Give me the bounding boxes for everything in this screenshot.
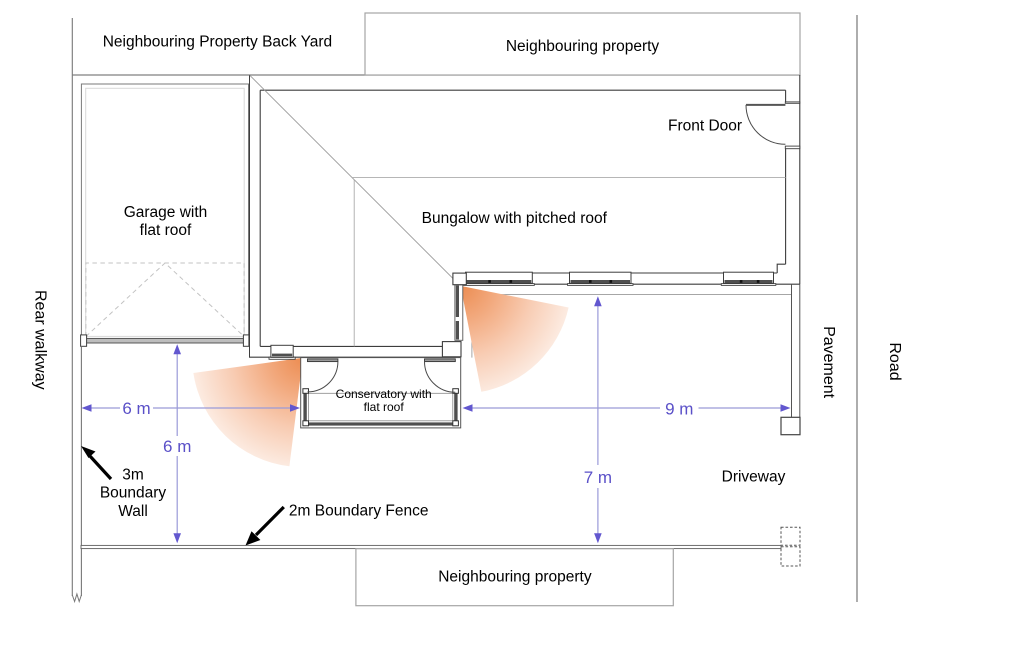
svg-text:Driveway: Driveway bbox=[722, 469, 786, 486]
svg-text:Neighbouring property: Neighbouring property bbox=[506, 38, 660, 55]
svg-text:Conservatory with: Conservatory with bbox=[336, 387, 432, 401]
svg-text:Wall: Wall bbox=[118, 503, 148, 520]
svg-text:2m Boundary Fence: 2m Boundary Fence bbox=[289, 502, 429, 519]
svg-text:Rear walkway: Rear walkway bbox=[32, 290, 49, 390]
svg-text:Neighbouring Property Back Yar: Neighbouring Property Back Yard bbox=[103, 33, 332, 50]
svg-text:Garage with: Garage with bbox=[124, 204, 208, 221]
svg-text:Bungalow with pitched roof: Bungalow with pitched roof bbox=[422, 210, 608, 227]
svg-text:7 m: 7 m bbox=[584, 468, 612, 487]
svg-text:6 m: 6 m bbox=[122, 399, 150, 418]
svg-text:Pavement: Pavement bbox=[820, 326, 837, 399]
svg-text:flat roof: flat roof bbox=[364, 400, 405, 414]
svg-text:Road: Road bbox=[886, 342, 903, 380]
svg-text:Boundary: Boundary bbox=[100, 485, 167, 502]
svg-text:flat roof: flat roof bbox=[140, 222, 192, 239]
svg-text:Neighbouring property: Neighbouring property bbox=[438, 568, 592, 585]
svg-text:9 m: 9 m bbox=[665, 400, 693, 419]
svg-text:6 m: 6 m bbox=[163, 437, 191, 456]
svg-text:Front Door: Front Door bbox=[668, 117, 742, 134]
svg-text:3m: 3m bbox=[122, 467, 144, 484]
